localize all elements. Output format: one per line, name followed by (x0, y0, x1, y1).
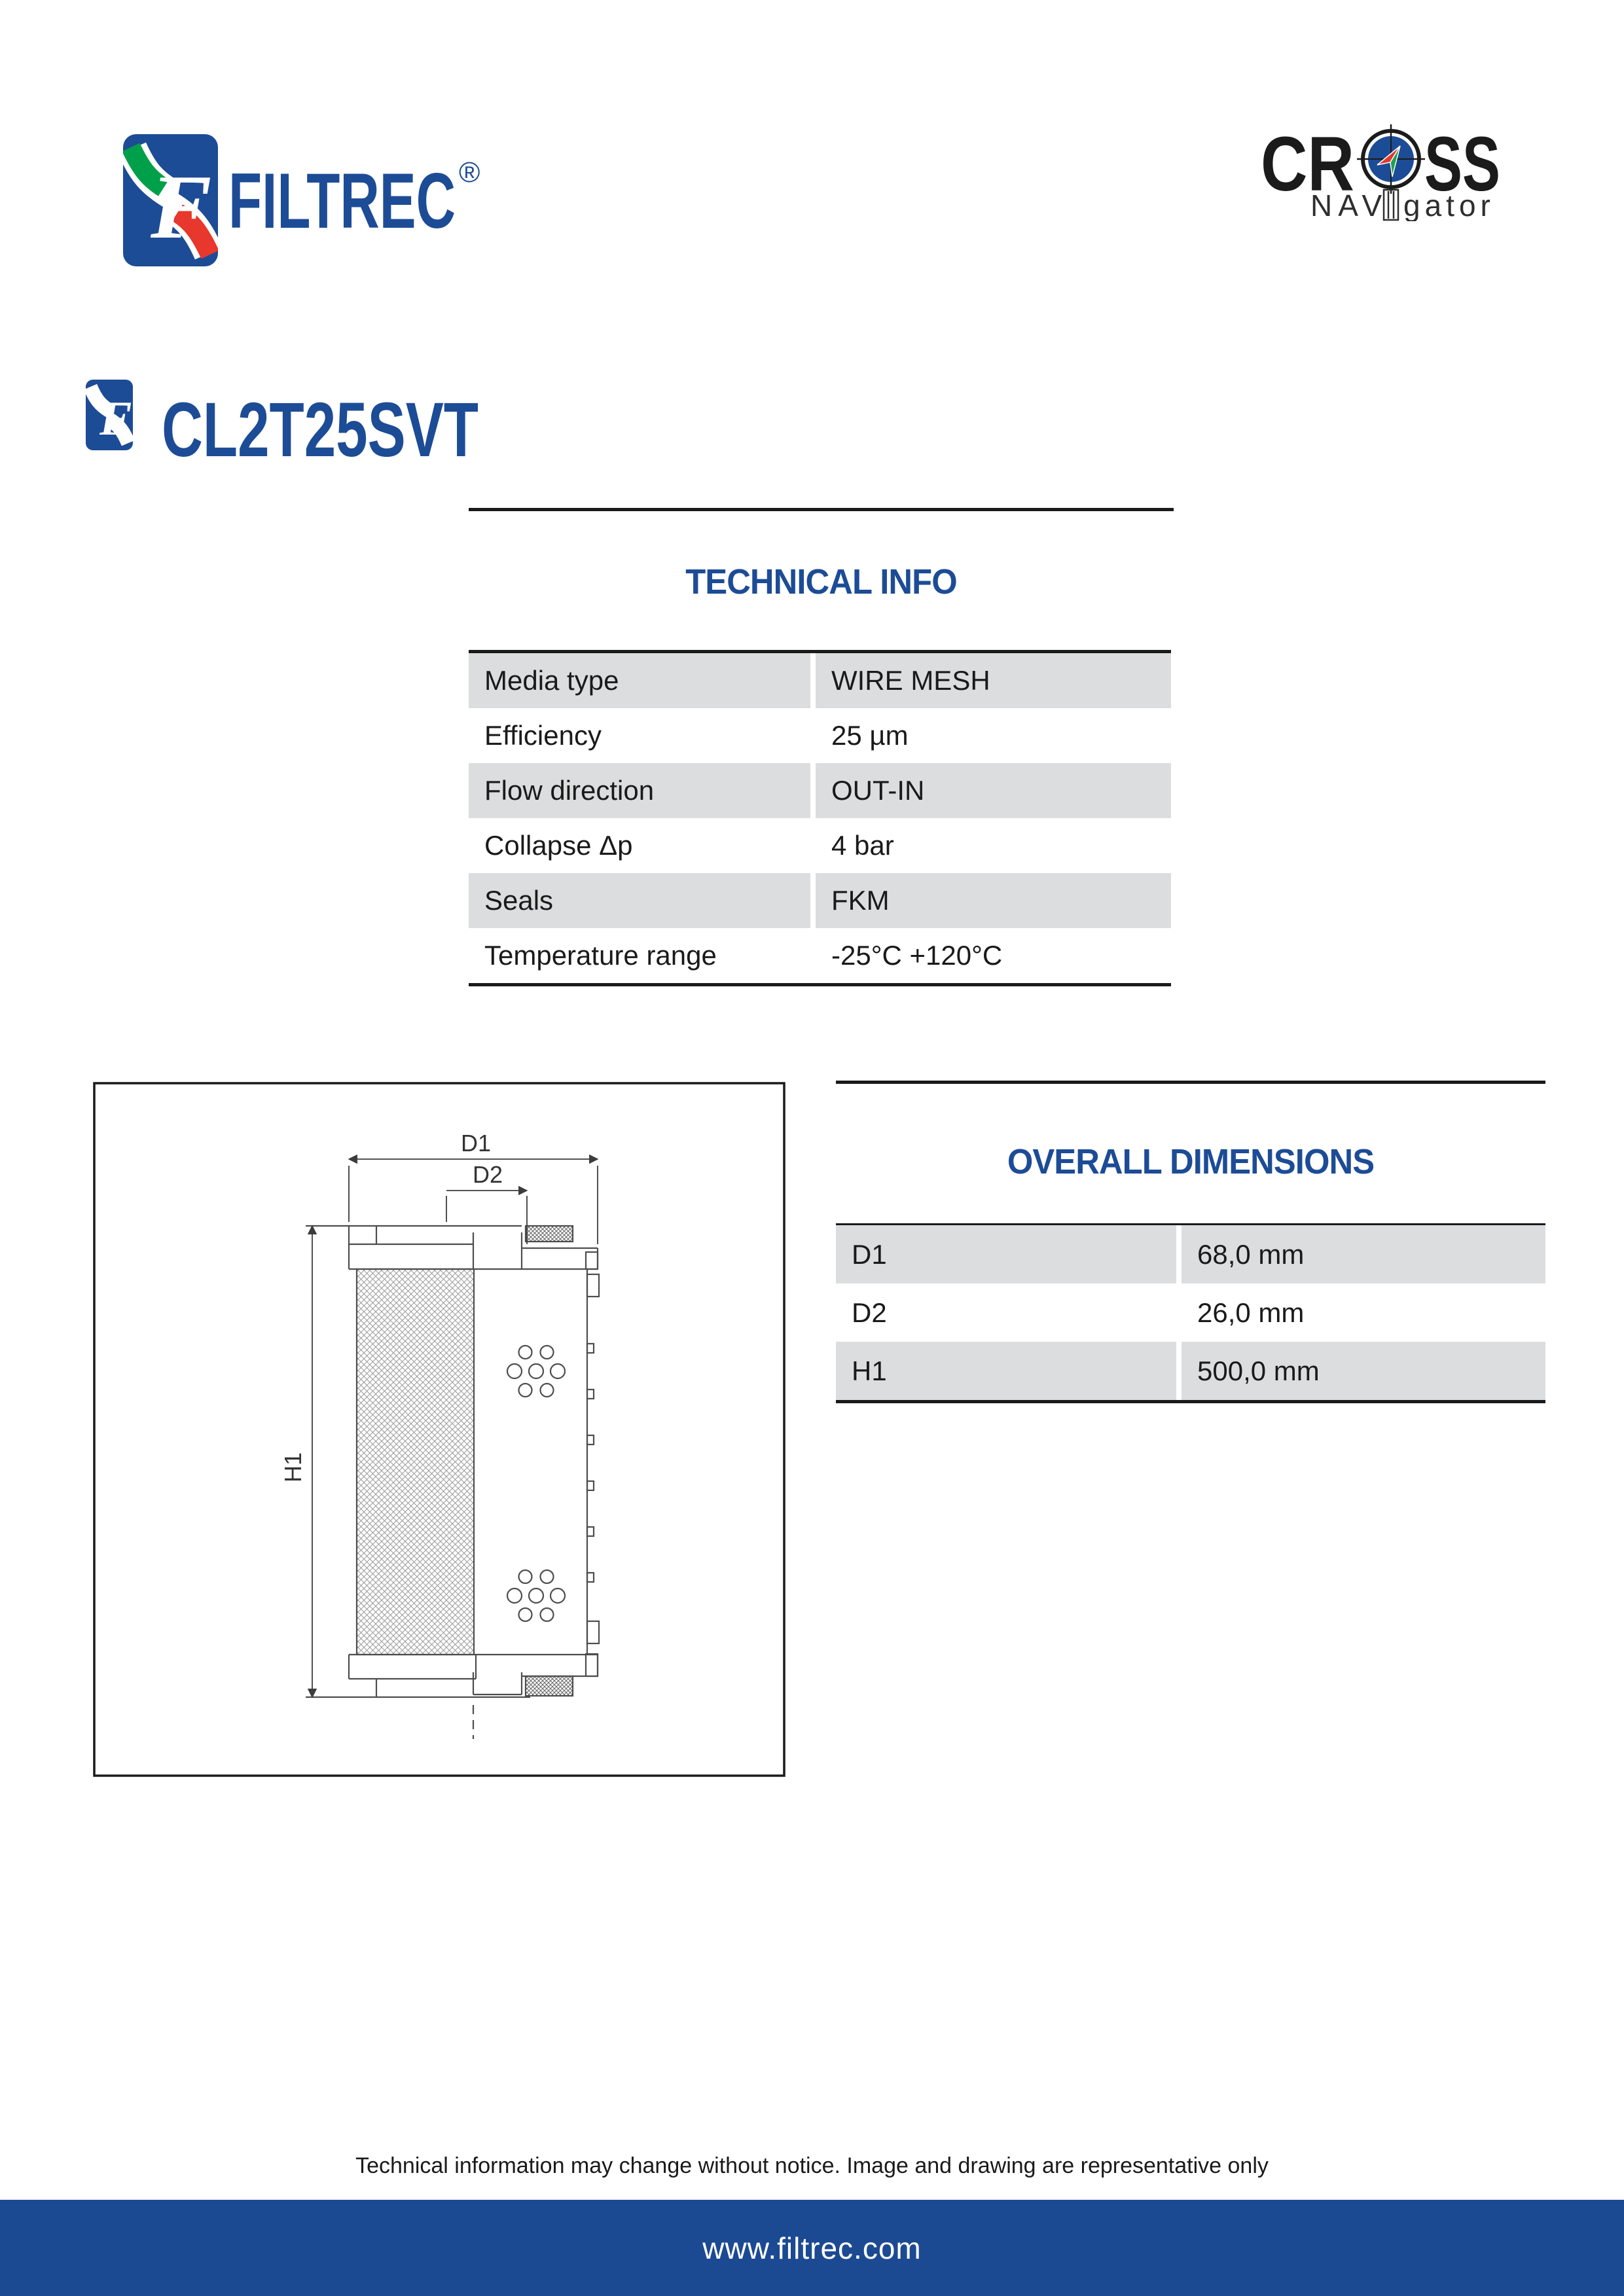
table-row: Temperature range-25°C +120°C (469, 928, 1171, 983)
compass-icon (1357, 124, 1425, 194)
row-label: D1 (836, 1225, 1176, 1283)
product-code: CL2T25SVT (162, 376, 528, 468)
registered-mark: ® (459, 156, 480, 188)
product-filtrec-mini-icon: F (86, 380, 133, 450)
table-row: Media typeWIRE MESH (469, 653, 1171, 708)
filtrec-wordmark: FILTREC ® (226, 151, 540, 236)
gator-text: gator (1403, 188, 1495, 221)
row-value: 25 µm (816, 708, 1171, 763)
technical-info-top-rule (469, 508, 1174, 511)
technical-info-title: TECHNICAL INFO (490, 562, 1152, 602)
footer-band: www.filtrec.com (0, 2200, 1624, 2296)
row-label: Efficiency (469, 708, 810, 763)
overall-dimensions-table: D168,0 mmD226,0 mmH1500,0 mm (836, 1223, 1545, 1403)
row-value: OUT-IN (816, 763, 1171, 818)
overall-dimensions-title: OVERALL DIMENSIONS (857, 1141, 1525, 1182)
table-row: Collapse Δp4 bar (469, 818, 1171, 873)
overall-dimensions-top-rule (836, 1081, 1545, 1084)
row-label: Flow direction (469, 763, 810, 818)
website-link[interactable]: www.filtrec.com (702, 2231, 921, 2266)
row-label: Seals (469, 873, 810, 928)
cross-navigator-logo: CR SS NAV gator (1255, 117, 1511, 221)
table-row: SealsFKM (469, 873, 1171, 928)
svg-text:F: F (99, 392, 132, 446)
row-label: Media type (469, 653, 810, 708)
disclaimer-text: Technical information may change without… (0, 2153, 1624, 2179)
table-row: H1500,0 mm (836, 1342, 1545, 1400)
technical-info-table: Media typeWIRE MESHEfficiency25 µmFlow d… (469, 650, 1171, 986)
dim-d1-label: D1 (461, 1130, 491, 1157)
row-label: Temperature range (469, 928, 810, 983)
nav-text: NAV (1310, 188, 1388, 221)
row-value: FKM (816, 873, 1171, 928)
filter-element-outline (306, 1226, 599, 1739)
datasheet-page: F FILTREC ® CR SS NAV gator (0, 0, 1624, 2296)
table-row: Flow directionOUT-IN (469, 763, 1171, 818)
row-value: -25°C +120°C (816, 928, 1171, 983)
perforation-holes-top (507, 1346, 565, 1397)
perforation-holes-bottom (507, 1570, 565, 1621)
row-value: 500,0 mm (1182, 1342, 1545, 1400)
technical-drawing: D1 D2 H1 (93, 1082, 785, 1777)
row-value: 68,0 mm (1182, 1225, 1545, 1283)
row-value: WIRE MESH (816, 653, 1171, 708)
product-code-text: CL2T25SVT (162, 387, 478, 468)
filtrec-logo-icon: F (123, 134, 218, 266)
row-label: Collapse Δp (469, 818, 810, 873)
row-value: 4 bar (816, 818, 1171, 873)
table-row: D226,0 mm (836, 1283, 1545, 1342)
row-label: D2 (836, 1283, 1176, 1342)
table-row: D168,0 mm (836, 1225, 1545, 1283)
svg-text:F: F (150, 156, 211, 258)
dim-h1-label: H1 (280, 1452, 306, 1482)
dim-d2-label: D2 (473, 1161, 503, 1188)
row-value: 26,0 mm (1182, 1283, 1545, 1342)
table-row: Efficiency25 µm (469, 708, 1171, 763)
brand-text: FILTREC (228, 157, 456, 236)
row-label: H1 (836, 1342, 1176, 1400)
